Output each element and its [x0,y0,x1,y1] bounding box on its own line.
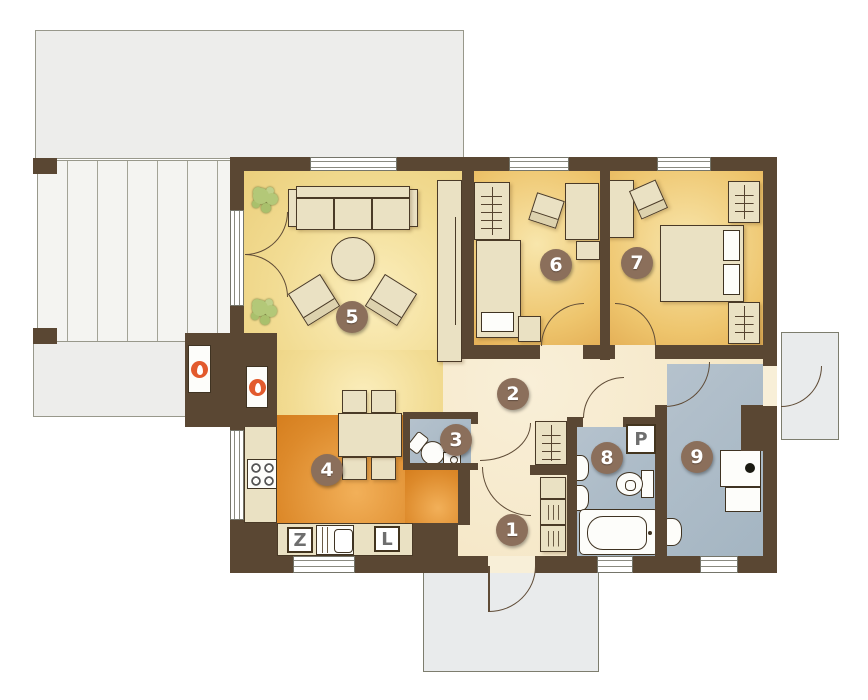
desk [606,180,634,238]
kitchen-floor [405,470,458,523]
dining-chair [371,390,396,413]
plant-icon [253,188,269,204]
hall-cabinet [540,477,566,499]
room-label-3: 3 [440,424,472,456]
bed-pillow [723,264,740,295]
window-living [310,157,397,171]
sink-drainer [318,527,332,553]
window-kitchen-south [293,556,355,573]
terrace-post [33,328,57,344]
washer-marker: P [626,424,656,454]
dining-chair [371,457,396,480]
sofa [288,186,418,234]
toilet-bowl [616,472,643,496]
sink-marker: Z [287,527,313,553]
wall-stub-hall [530,465,567,475]
bathtub-drain [648,531,652,535]
window-bedroom6 [509,157,569,171]
front-door-leaf [488,566,490,612]
terrace-deck [37,160,232,343]
room-label-7: 7 [621,247,653,279]
room-label-1: 1 [496,514,528,546]
room-label-6: 6 [540,249,572,281]
wall-bedrooms-south [462,345,540,359]
room-label-2: 2 [497,378,529,410]
room-label-5: 5 [336,301,368,333]
nightstand [518,316,541,342]
wardrobe [728,181,760,223]
flame-icon [255,383,261,393]
wc-wall [403,412,478,419]
window-utility [700,556,738,573]
wall-bedrooms-south [583,345,615,359]
terrace-post [33,158,57,174]
sofa-cushion [296,198,334,230]
shelf-unit [540,525,566,552]
dining-table [338,413,402,457]
shelf [576,241,600,260]
balcony-door-glazing [230,210,244,306]
window-bathroom [597,556,633,573]
wardrobe [535,421,567,465]
floor-plan: Z L P 1 2 3 4 5 6 7 8 9 [0,0,868,700]
dining-chair [342,457,367,480]
living-cabinet [437,180,462,362]
fridge-marker: L [374,526,400,552]
wc-wall [403,412,410,470]
terrace-upper [35,30,464,159]
fireplace-icon [249,379,266,396]
room-label-4: 4 [311,454,343,486]
boiler-icon [720,450,761,487]
boiler-cabinet [725,487,761,512]
wall-bed6-bed7 [600,164,610,360]
wc-wall [471,412,478,424]
wardrobe [728,302,760,344]
wall-pier-utility [741,405,763,451]
wardrobe [474,182,510,240]
wall-corner-southwest [230,523,277,563]
flame-icon [197,365,203,375]
boiler-dot [745,463,755,473]
plant-icon [252,300,268,316]
window-bedroom7 [657,157,711,171]
sofa-back [296,186,410,198]
wall-utility-west [655,405,667,567]
bed-pillow [723,230,740,261]
fireplace-icon [191,361,208,378]
wall-bathroom-west [567,417,577,567]
wall-corner-south [413,523,458,563]
toilet-bowl-ring [625,480,636,491]
sink-basin [334,529,353,553]
shelf-unit [540,499,566,525]
wall-kitchen-hall [458,467,470,525]
wall-living-bed6 [462,164,474,352]
wall-east [763,157,777,573]
sofa-cushion [372,198,410,230]
coffee-table [331,237,375,281]
window-kitchen-west [230,430,244,520]
dining-chair [342,390,367,413]
room-label-8: 8 [591,442,623,474]
wall-bedrooms-south [655,345,763,359]
side-door-opening [763,366,777,406]
desk [565,183,599,240]
sofa-cushion [334,198,372,230]
bathtub-inner [587,516,647,550]
bed-pillow [481,312,514,332]
room-label-9: 9 [681,441,713,473]
stove-icon [247,459,277,489]
bathtub-icon [579,509,659,555]
kitchen-sink-icon [316,525,354,555]
